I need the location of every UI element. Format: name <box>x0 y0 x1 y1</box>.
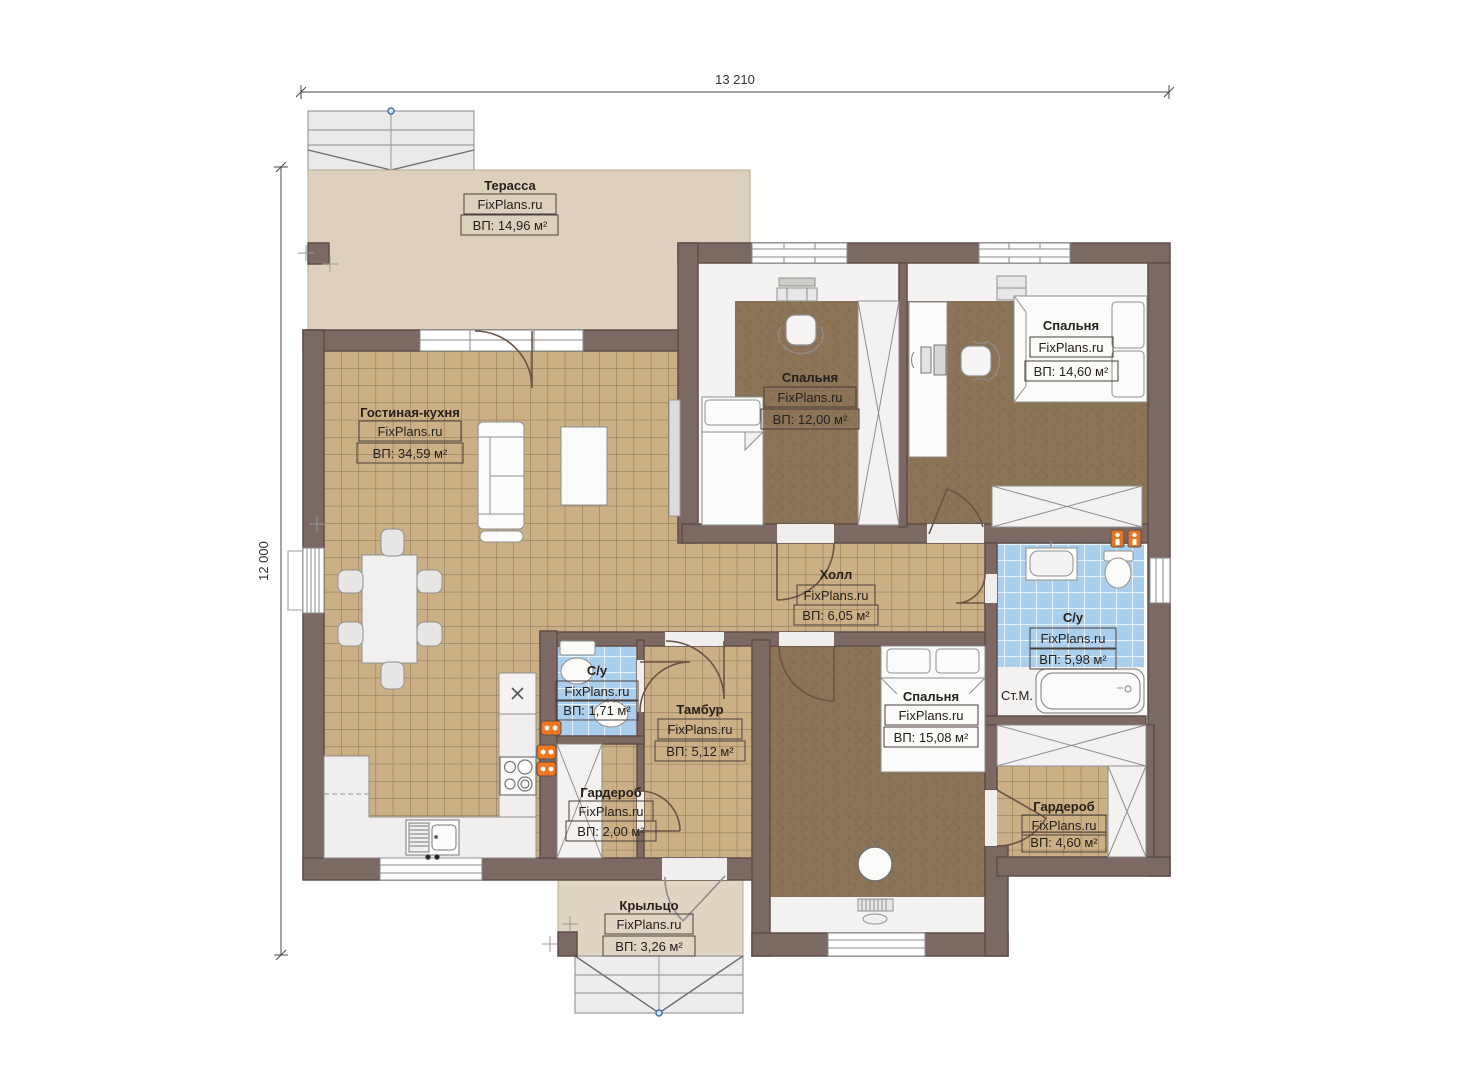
svg-text:ВП: 2,00 м²: ВП: 2,00 м² <box>577 824 645 839</box>
svg-text:ВП: 14,60 м²: ВП: 14,60 м² <box>1034 364 1109 379</box>
svg-text:FixPlans.ru: FixPlans.ru <box>377 424 442 439</box>
svg-text:ВП: 5,98 м²: ВП: 5,98 м² <box>1039 652 1107 667</box>
svg-text:FixPlans.ru: FixPlans.ru <box>803 588 868 603</box>
svg-text:Холл: Холл <box>820 567 853 582</box>
svg-text:ВП: 4,60 м²: ВП: 4,60 м² <box>1030 835 1098 850</box>
svg-text:ВП: 14,96 м²: ВП: 14,96 м² <box>473 218 548 233</box>
svg-text:13 210: 13 210 <box>715 72 755 87</box>
svg-text:С/у: С/у <box>587 663 608 678</box>
svg-text:ВП: 12,00 м²: ВП: 12,00 м² <box>773 412 848 427</box>
svg-text:ВП: 5,12 м²: ВП: 5,12 м² <box>666 744 734 759</box>
svg-text:Спальня: Спальня <box>782 370 838 385</box>
svg-text:FixPlans.ru: FixPlans.ru <box>616 917 681 932</box>
svg-text:ВП: 34,59 м²: ВП: 34,59 м² <box>373 446 448 461</box>
svg-text:Терасса: Терасса <box>484 178 536 193</box>
svg-text:FixPlans.ru: FixPlans.ru <box>1038 340 1103 355</box>
svg-text:Гардероб: Гардероб <box>580 785 641 800</box>
svg-text:Тамбур: Тамбур <box>676 702 723 717</box>
svg-text:Крыльцо: Крыльцо <box>619 898 678 913</box>
svg-text:FixPlans.ru: FixPlans.ru <box>667 722 732 737</box>
svg-text:Спальня: Спальня <box>1043 318 1099 333</box>
svg-text:FixPlans.ru: FixPlans.ru <box>1031 818 1096 833</box>
svg-text:FixPlans.ru: FixPlans.ru <box>777 390 842 405</box>
svg-text:ВП: 15,08 м²: ВП: 15,08 м² <box>894 730 969 745</box>
svg-text:Гостиная-кухня: Гостиная-кухня <box>360 405 460 420</box>
svg-text:ВП: 1,71 м²: ВП: 1,71 м² <box>563 703 631 718</box>
svg-text:FixPlans.ru: FixPlans.ru <box>898 708 963 723</box>
svg-text:12 000: 12 000 <box>256 541 271 581</box>
svg-text:Гардероб: Гардероб <box>1033 799 1094 814</box>
svg-text:Спальня: Спальня <box>903 689 959 704</box>
svg-text:ВП: 3,26 м²: ВП: 3,26 м² <box>615 939 683 954</box>
svg-text:ВП: 6,05 м²: ВП: 6,05 м² <box>802 608 870 623</box>
svg-text:FixPlans.ru: FixPlans.ru <box>564 684 629 699</box>
svg-text:FixPlans.ru: FixPlans.ru <box>1040 631 1105 646</box>
svg-text:Ст.М.: Ст.М. <box>1001 688 1033 703</box>
svg-text:FixPlans.ru: FixPlans.ru <box>578 804 643 819</box>
svg-text:FixPlans.ru: FixPlans.ru <box>477 197 542 212</box>
svg-text:С/у: С/у <box>1063 610 1084 625</box>
